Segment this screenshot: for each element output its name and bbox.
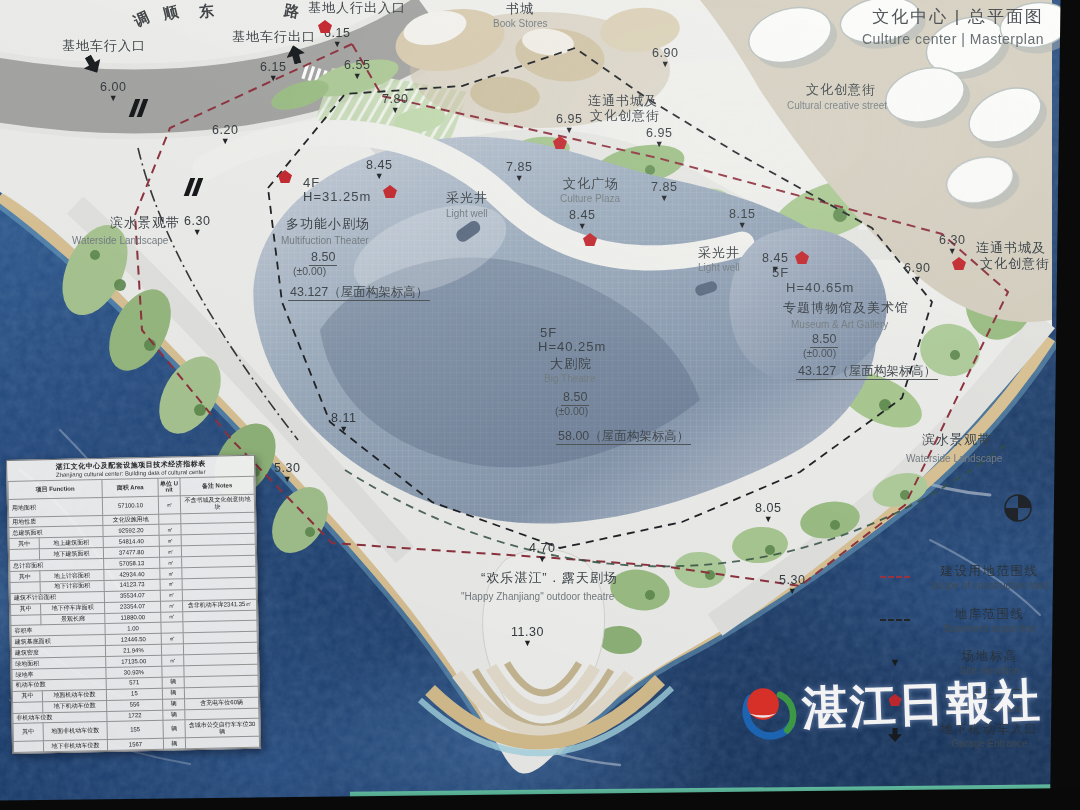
table-cell: 用地面积 (8, 497, 102, 517)
table-cell: 57100.10 (102, 496, 158, 515)
table-cell: 地下非机动车位数 (43, 740, 107, 752)
table-cell (162, 666, 184, 677)
building-entrance-icon (952, 257, 966, 270)
table-cell: 其中 (9, 538, 39, 550)
table-cell: 地面非机动车位数 (43, 722, 107, 741)
table-cell: ㎡ (159, 535, 181, 546)
legend-label-zh: 建设用地范围线 (919, 563, 1060, 580)
table-cell: 其中 (11, 603, 41, 615)
table-cell: ㎡ (161, 633, 183, 644)
column-header: 面积 Area (102, 478, 158, 497)
vehicle-entrance-arrow-icon (80, 52, 106, 78)
legend-label-en: Scope of construction land (919, 580, 1060, 591)
newspaper-logo-text: 湛江日報社 (801, 670, 1043, 740)
table-cell (13, 701, 43, 713)
black-dashed-line-icon (880, 619, 910, 621)
legend-swatch: ▼ (878, 656, 912, 668)
newspaper-logo-icon (722, 678, 806, 762)
building-entrance-icon (583, 233, 597, 246)
legend-swatch (878, 576, 912, 578)
legend-label-zh: 地库范围线 (919, 606, 1060, 623)
legend-text: 地库范围线Basement scope line (919, 606, 1060, 634)
column-header: 项目 Function (8, 479, 102, 499)
table-cell (13, 741, 43, 753)
garage-entrance-icon (186, 178, 203, 196)
table-cell (10, 582, 40, 594)
table-cell (161, 644, 183, 655)
table-cell: ㎡ (160, 568, 182, 579)
garage-entrance-icon (131, 99, 148, 117)
building-entrance-icon (278, 170, 292, 183)
column-header: 单位 Unit (158, 478, 180, 496)
table-cell: 155 (107, 721, 163, 740)
table-cell (161, 622, 183, 633)
table-cell (159, 513, 181, 524)
table-cell (185, 737, 259, 749)
legend-text: 建设用地范围线Scope of construction land (919, 563, 1060, 591)
table-cell: ㎡ (158, 496, 180, 514)
legend-item: 地库范围线Basement scope line (878, 606, 1060, 634)
table-cell: 辆 (163, 738, 185, 749)
red-dashed-line-icon (880, 576, 910, 578)
table-cell (11, 614, 41, 626)
building-entrance-icon (553, 136, 567, 149)
table-cell: 其中 (10, 571, 40, 583)
table-cell: ㎡ (160, 601, 182, 612)
table-cell: ㎡ (161, 611, 183, 622)
legend-label-en: Basement scope line (919, 623, 1060, 634)
masterplan-board-photo: 文化中心 | 总平面图 Culture center | Masterplan … (0, 0, 1080, 810)
building-entrance-icon (383, 185, 397, 198)
data-table: 项目 Function面积 Area单位 Unit备注 Notes用地面积571… (7, 476, 260, 753)
legend-swatch (878, 619, 912, 621)
table-cell: 辆 (163, 720, 185, 738)
table-cell: 1567 (107, 739, 163, 751)
table-cell: 辆 (162, 677, 184, 688)
table-cell: 其中 (13, 723, 43, 741)
table-cell: 辆 (163, 709, 185, 720)
newspaper-logo: 湛江日報社 (722, 670, 1052, 770)
building-entrance-icon (795, 251, 809, 264)
table-cell: 含城市公交自行车车位30辆 (185, 719, 259, 738)
building-data-table: 湛江文化中心及配套设施项目技术经济指标表 Zhanjiang cultural … (6, 455, 261, 754)
table-cell (9, 549, 39, 561)
column-header: 备注 Notes (180, 476, 254, 495)
table-cell: 辆 (162, 688, 184, 699)
legend-label-zh: 场地标高 (919, 648, 1060, 665)
table-cell: ㎡ (162, 655, 184, 666)
vehicle-entrance-arrow-icon (284, 43, 307, 66)
legend-item: 建设用地范围线Scope of construction land (878, 563, 1060, 591)
table-cell: ㎡ (160, 579, 182, 590)
table-cell: ㎡ (160, 590, 182, 601)
table-cell: 其中 (12, 691, 42, 703)
table-cell: ㎡ (159, 524, 181, 535)
building-entrance-icon (318, 20, 332, 33)
table-cell: ㎡ (159, 546, 181, 557)
table-cell: 辆 (163, 699, 185, 710)
elevation-triangle-icon: ▼ (890, 656, 901, 668)
table-cell: ㎡ (160, 557, 182, 568)
table-cell: 不含书城及文化创意街地块 (180, 494, 254, 513)
